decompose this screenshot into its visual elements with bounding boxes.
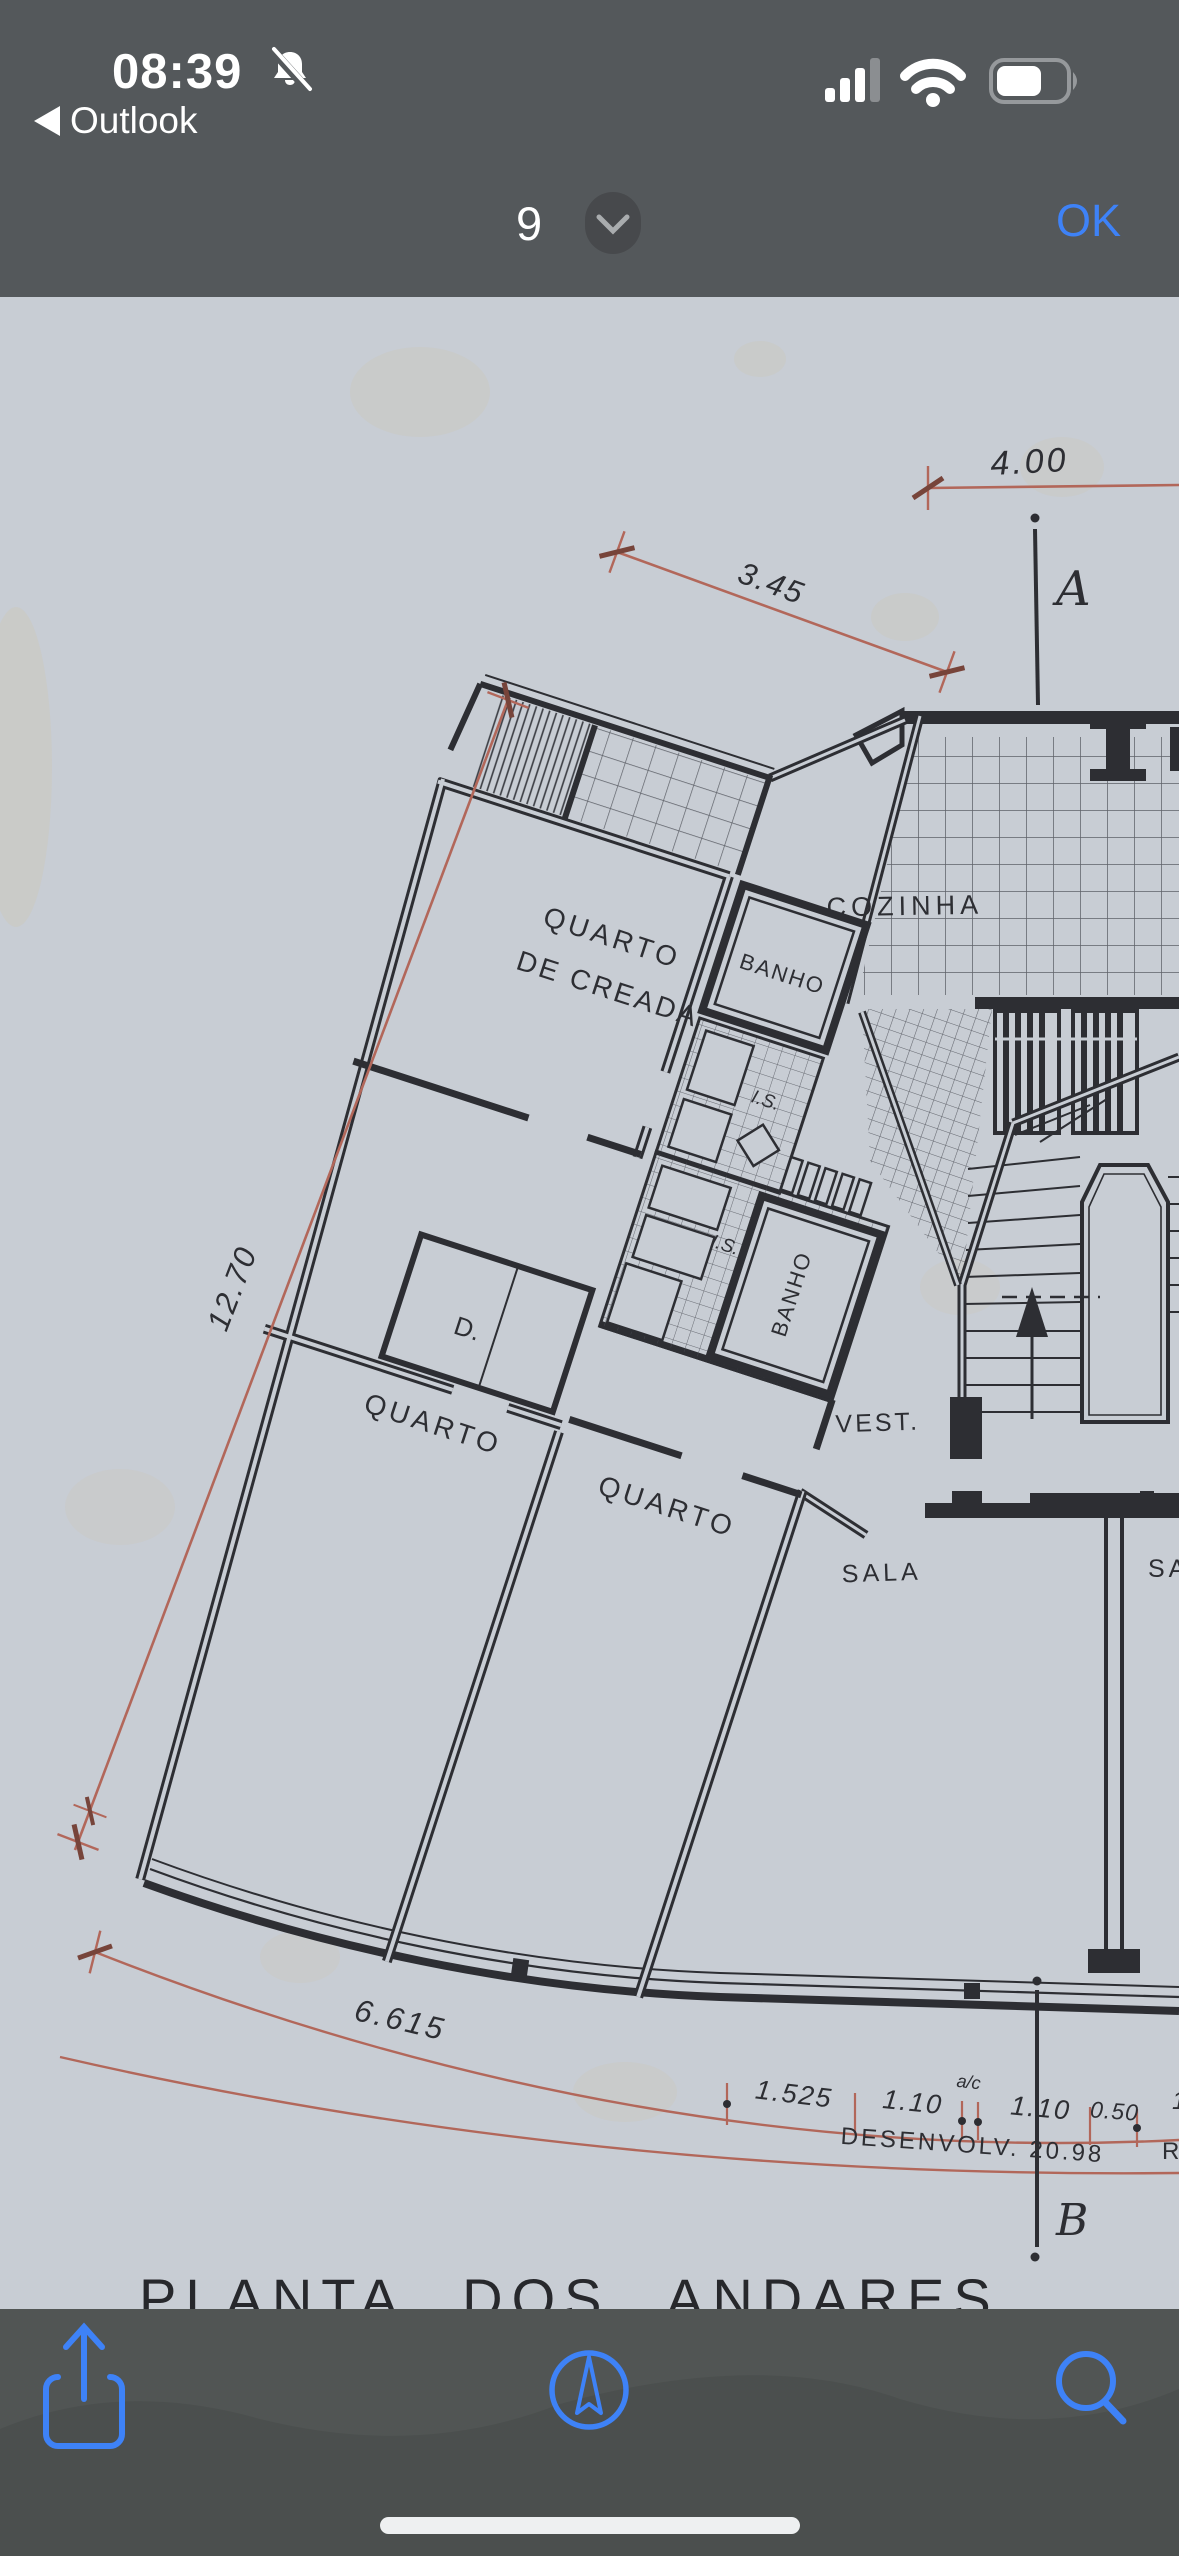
status-time: 08:39 xyxy=(112,44,242,100)
room-label-sala: SALA xyxy=(841,1558,922,1589)
page-dropdown-button[interactable] xyxy=(585,192,641,254)
chevron-down-icon xyxy=(595,213,631,235)
page-number: 9 xyxy=(516,196,542,251)
room-label-sala-partial: SA xyxy=(1148,1555,1179,1583)
drawing-title: PLANTA DOS ANDARES xyxy=(139,2267,1000,2309)
axis-label-bottom: B xyxy=(1055,2195,1088,2246)
ok-button[interactable]: OK xyxy=(1050,194,1127,248)
room-label-quarto-mid: QUARTO xyxy=(595,1470,740,1544)
dim-seg-e: 1 xyxy=(1172,2087,1179,2115)
dim-bottom-left: 6.615 xyxy=(351,1992,449,2047)
room-label-d: D. xyxy=(450,1310,484,1347)
dim-seg-b: 1.10 xyxy=(881,2084,944,2120)
dim-top: 4.00 xyxy=(989,441,1069,483)
back-button[interactable]: Outlook xyxy=(34,100,198,142)
search-icon[interactable] xyxy=(1059,2354,1123,2421)
dim-terrace: 3.45 xyxy=(733,555,809,611)
floorplan-image: COZINHA xyxy=(0,297,1179,2309)
dim-partial-right: R xyxy=(1162,2138,1179,2165)
room-label-vest: VEST. xyxy=(835,1408,920,1439)
attachment-preview[interactable]: COZINHA xyxy=(0,297,1179,2309)
terrace xyxy=(441,672,774,876)
bottom-toolbar xyxy=(0,2309,1179,2556)
iphone-screen: 08:39 Outlook xyxy=(0,0,1179,2556)
dim-seg-d: 0.50 xyxy=(1089,2096,1139,2125)
back-label: Outlook xyxy=(70,100,198,142)
home-indicator[interactable] xyxy=(380,2517,800,2534)
dim-seg-c: 1.10 xyxy=(1009,2090,1072,2125)
bell-slash-icon xyxy=(266,46,314,94)
closet-d xyxy=(382,1235,593,1412)
dim-seg-a: 1.525 xyxy=(754,2074,835,2113)
attachment-nav: 9 OK xyxy=(0,188,1179,268)
apartment-left: D. BANHO I.S. xyxy=(86,671,1012,2039)
back-chevron-icon xyxy=(34,106,60,136)
dim-left: 12.70 xyxy=(200,1241,264,1335)
status-icons xyxy=(779,0,1179,120)
room-label-quarto-left: QUARTO xyxy=(361,1387,506,1461)
wifi-icon xyxy=(905,64,961,107)
cellular-signal-icon xyxy=(825,58,880,102)
header-bar: 08:39 Outlook xyxy=(0,0,1179,297)
dim-seg-ac: a/c xyxy=(956,2071,982,2093)
dim-developed: DESENVOLV. 20.98 xyxy=(840,2123,1105,2168)
axis-label-top: A xyxy=(1052,561,1091,617)
battery-icon xyxy=(991,60,1077,102)
